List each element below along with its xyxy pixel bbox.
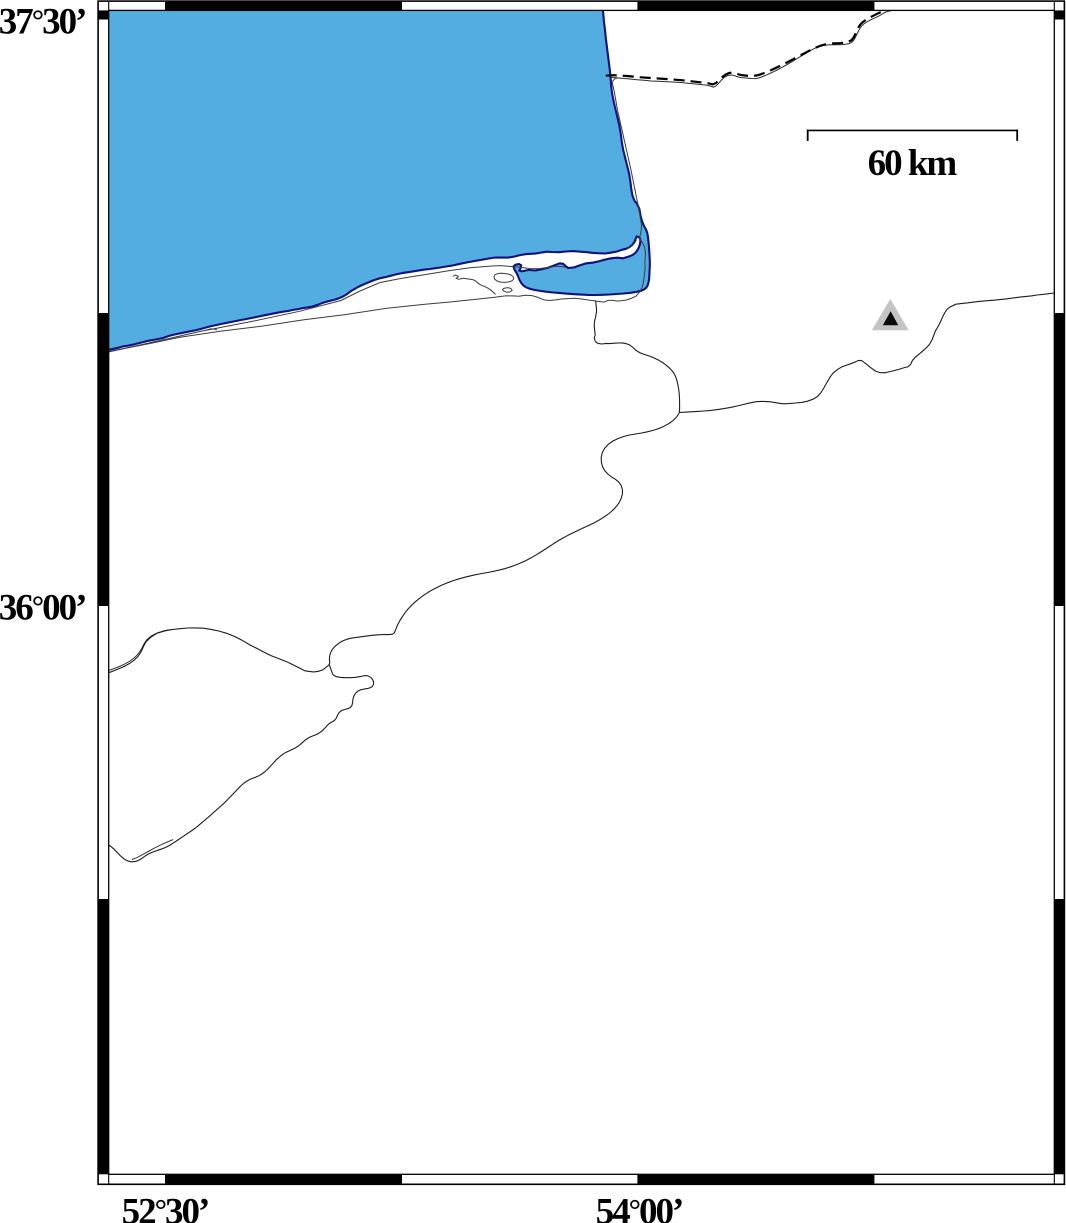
svg-text:36°00’: 36°00’	[0, 588, 86, 629]
svg-text:54°00’: 54°00’	[596, 1191, 683, 1223]
svg-text:37°30’: 37°30’	[0, 2, 86, 43]
svg-text:60 km: 60 km	[868, 143, 958, 184]
svg-text:52°30’: 52°30’	[122, 1191, 209, 1223]
